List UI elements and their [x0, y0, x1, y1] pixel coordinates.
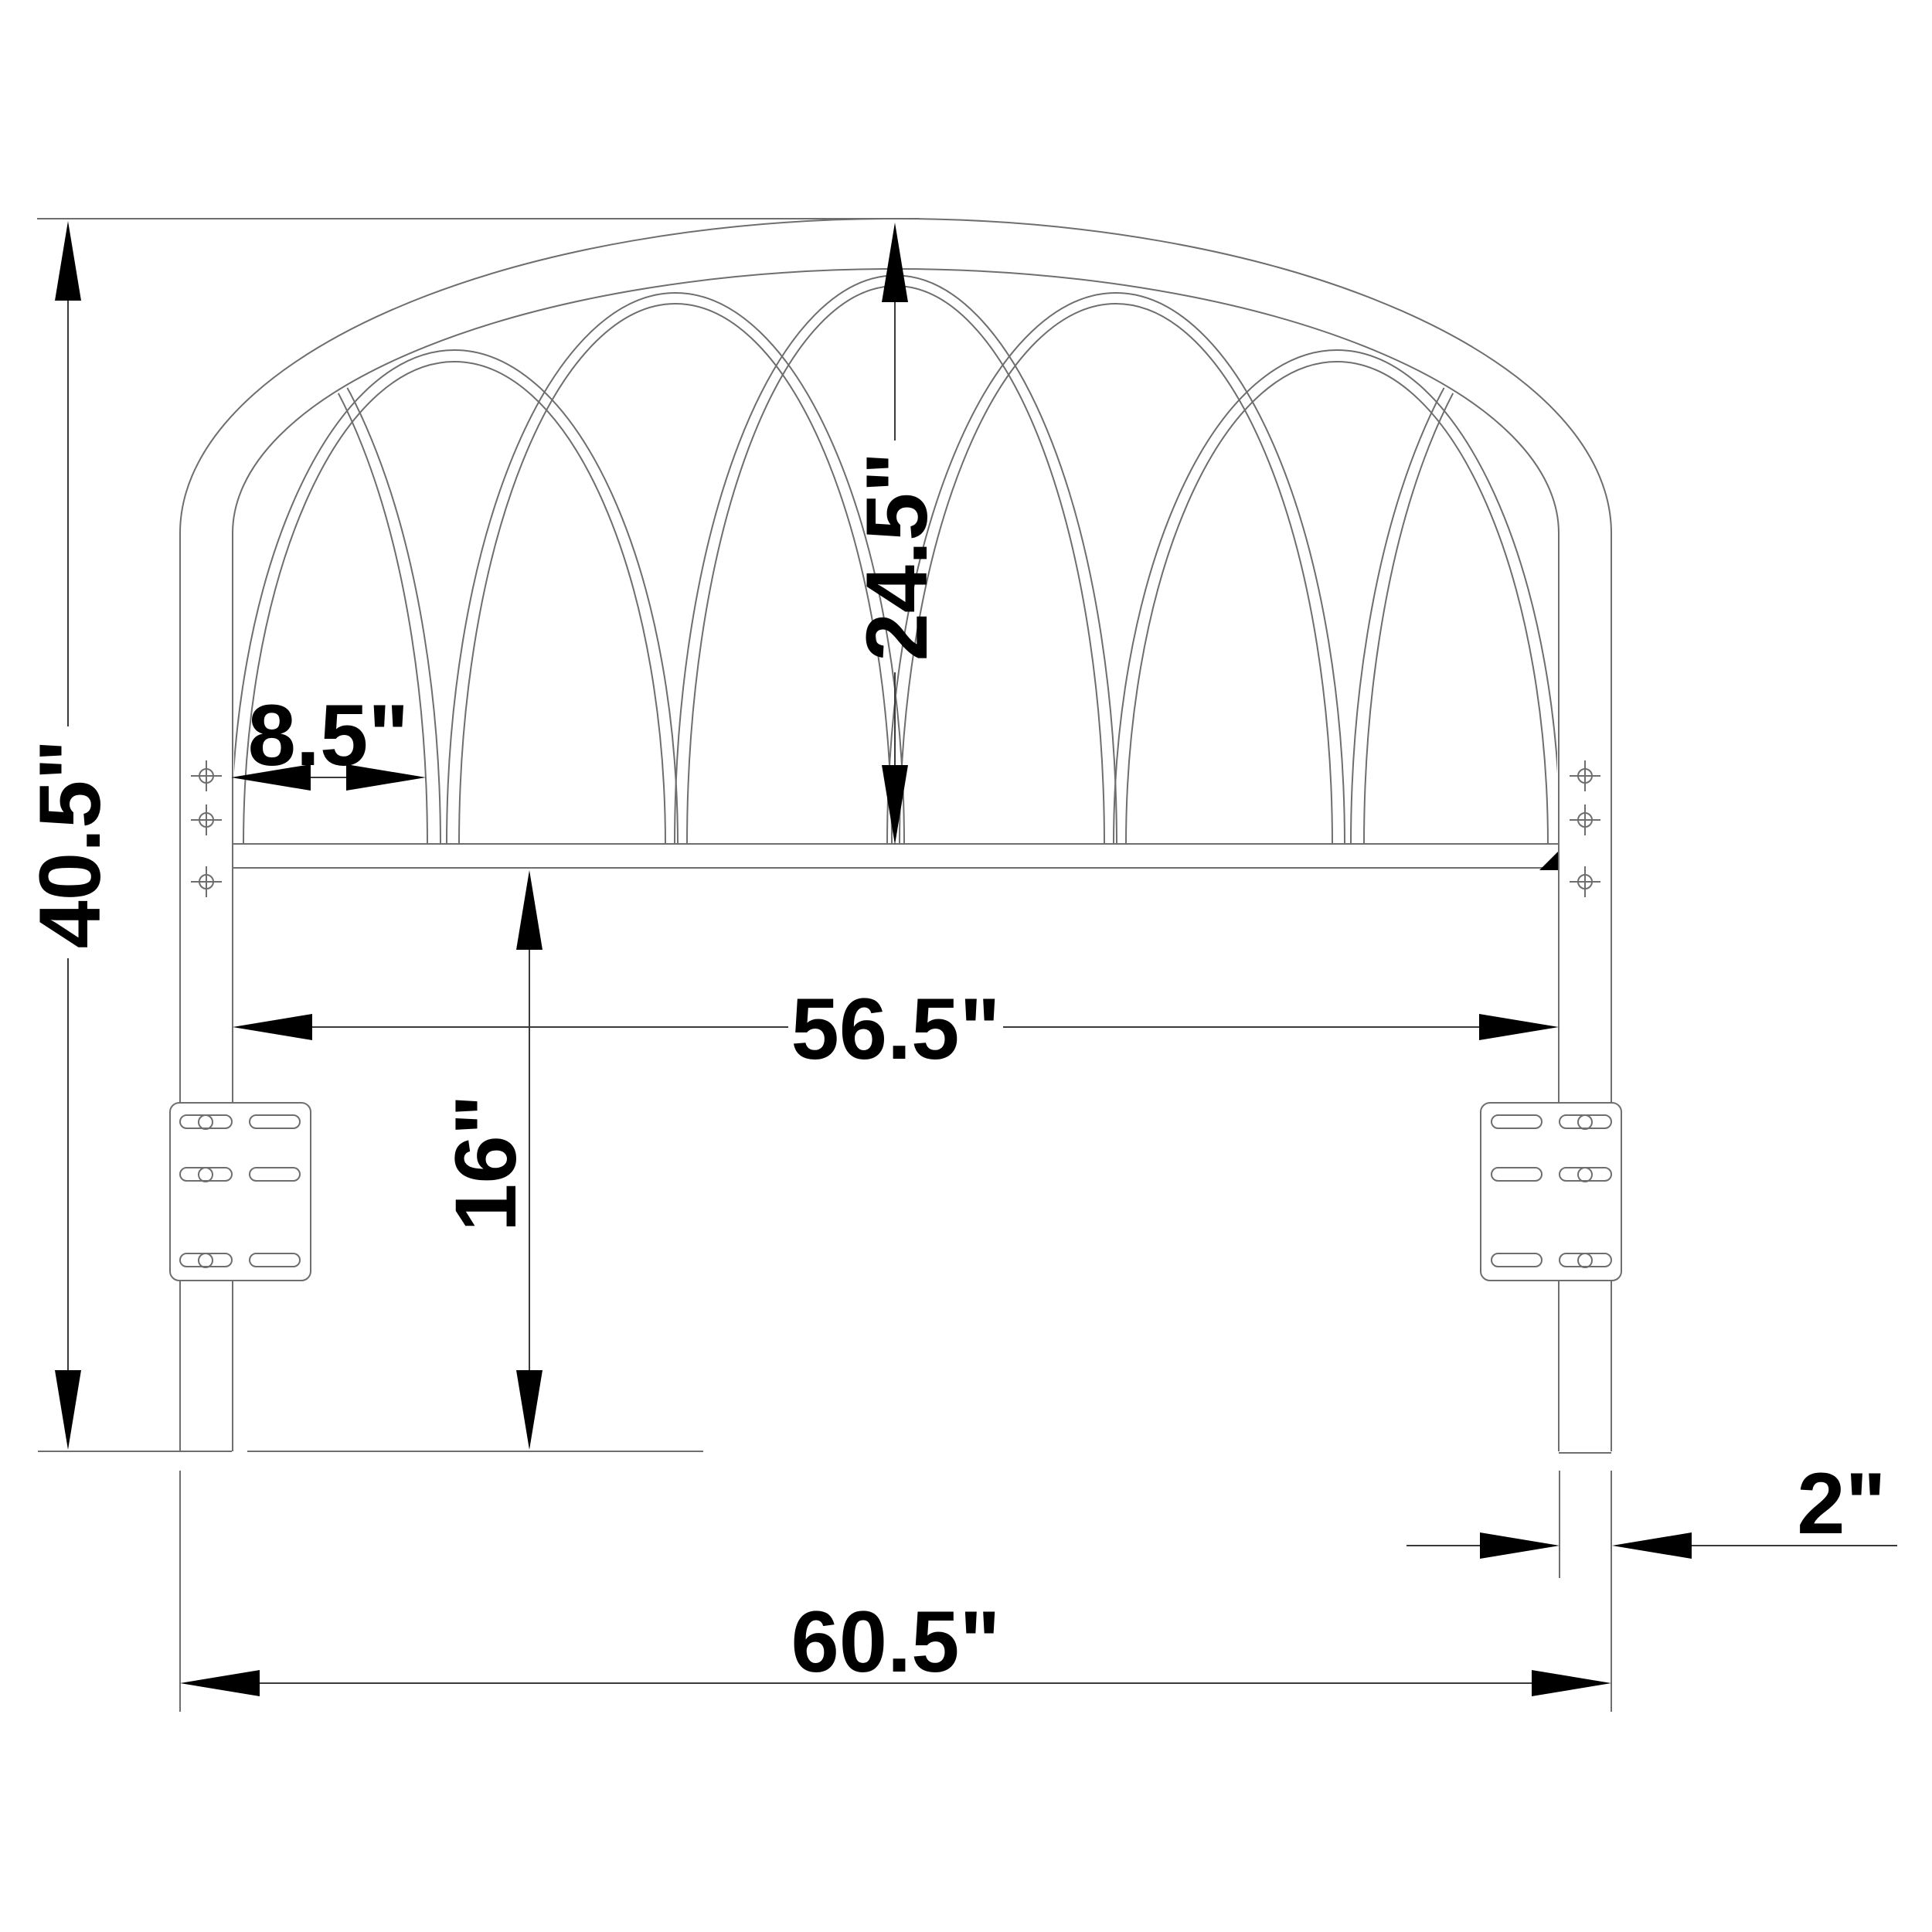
dim-arch-spacing: 8.5" — [231, 687, 426, 791]
screw-cross-icon — [191, 804, 222, 835]
dim-panel-height: 24.5" — [849, 223, 945, 845]
dim-overall-height-label: 40.5" — [22, 739, 118, 948]
mounting-plate-left — [170, 1103, 311, 1281]
headboard-inner-outline — [233, 269, 1559, 1451]
tracery-arc — [1126, 362, 1548, 845]
arrow-right-icon — [1532, 1670, 1611, 1696]
tracery-arc — [1114, 350, 1560, 845]
headboard-structure — [0, 219, 1822, 1453]
dim-inner-width: 56.5" — [233, 981, 1559, 1077]
crossbar-corner-notch — [1539, 852, 1558, 870]
arrow-left-icon — [233, 1014, 312, 1040]
mounting-plate-right — [1481, 1103, 1621, 1281]
dim-overall-width-label: 60.5" — [791, 1594, 1000, 1690]
crossbar — [233, 844, 1559, 868]
screw-cross-icon — [1570, 866, 1600, 897]
arrow-down-icon — [516, 1370, 543, 1450]
arrow-left-icon — [1612, 1532, 1692, 1559]
screw-cross-icon — [1570, 804, 1600, 835]
screw-cross-icon — [1570, 760, 1600, 791]
dim-leg-height-label: 16" — [437, 1094, 534, 1232]
dim-leg-height: 16" — [437, 870, 543, 1450]
arrow-up-icon — [882, 223, 908, 302]
screw-marks-left — [191, 760, 222, 897]
dim-panel-height-label: 24.5" — [849, 451, 945, 661]
arrow-right-icon — [1479, 1014, 1559, 1040]
dim-overall-width: 60.5" — [180, 1594, 1611, 1696]
screw-marks-right — [1570, 760, 1600, 897]
dim-leg-width-label: 2" — [1797, 1455, 1886, 1552]
arrow-up-icon — [55, 221, 81, 301]
dim-overall-height: 40.5" — [22, 221, 118, 1450]
drawing-canvas: 40.5" 24.5" 8.5" 56.5" 16" 2" — [0, 0, 1932, 1932]
screw-cross-icon — [191, 866, 222, 897]
arrow-left-icon — [180, 1670, 260, 1696]
dim-inner-width-label: 56.5" — [791, 981, 1000, 1077]
arrow-up-icon — [516, 870, 543, 950]
tracery-arc — [1364, 281, 1809, 845]
dim-leg-width: 2" — [1406, 1455, 1897, 1559]
tracery-arc — [1351, 271, 1822, 845]
screw-cross-icon — [191, 760, 222, 791]
tracery-arc — [447, 293, 904, 845]
arrow-right-icon — [1480, 1532, 1560, 1559]
tracery-arc — [887, 293, 1345, 845]
arrow-down-icon — [55, 1370, 81, 1450]
headboard-dimension-drawing: 40.5" 24.5" 8.5" 56.5" 16" 2" — [0, 0, 1932, 1932]
dim-arch-spacing-label: 8.5" — [248, 687, 410, 784]
